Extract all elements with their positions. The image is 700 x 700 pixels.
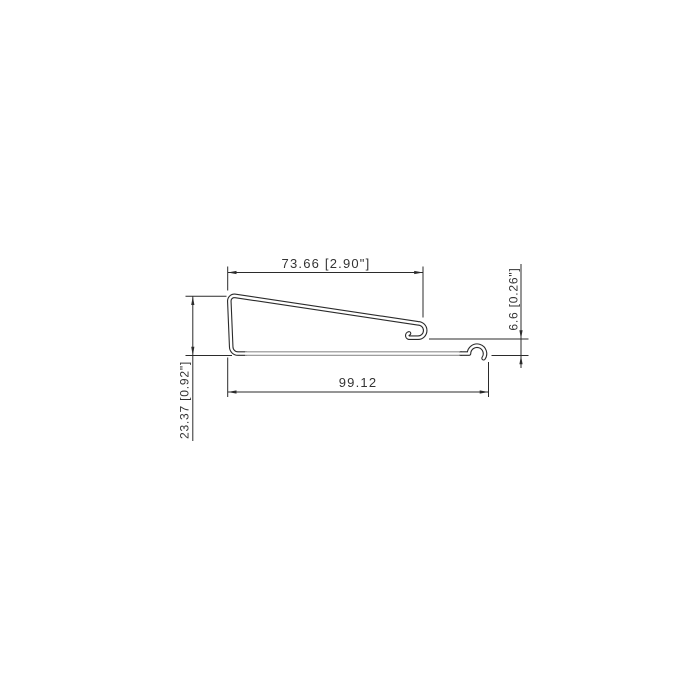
arrowhead-bottom	[519, 356, 522, 365]
left-height-label: 23.37 [0.92"]	[178, 361, 192, 439]
arrowhead-right	[480, 390, 489, 393]
profile-outline	[229, 296, 485, 358]
right-height-label: 6.6 [0.26"]	[507, 267, 521, 330]
bottom-width-label: 99.12	[339, 375, 378, 390]
arrowhead-top	[191, 296, 194, 305]
arrowhead-left	[228, 271, 237, 274]
drawing-canvas: 73.66 [2.90"] 99.12 23.37 [0.92"]	[0, 0, 700, 700]
technical-drawing: 73.66 [2.90"] 99.12 23.37 [0.92"]	[0, 0, 700, 700]
arrowhead-right	[414, 271, 423, 274]
arrowhead-left	[228, 390, 237, 393]
arrowhead-bottom	[191, 347, 194, 356]
bottom-width-dimension: 99.12	[228, 358, 489, 398]
top-width-label: 73.66 [2.90"]	[282, 256, 371, 271]
profile-inner-face	[229, 296, 485, 358]
profile-upper-section	[229, 296, 425, 354]
left-height-dimension: 23.37 [0.92"]	[178, 296, 233, 441]
